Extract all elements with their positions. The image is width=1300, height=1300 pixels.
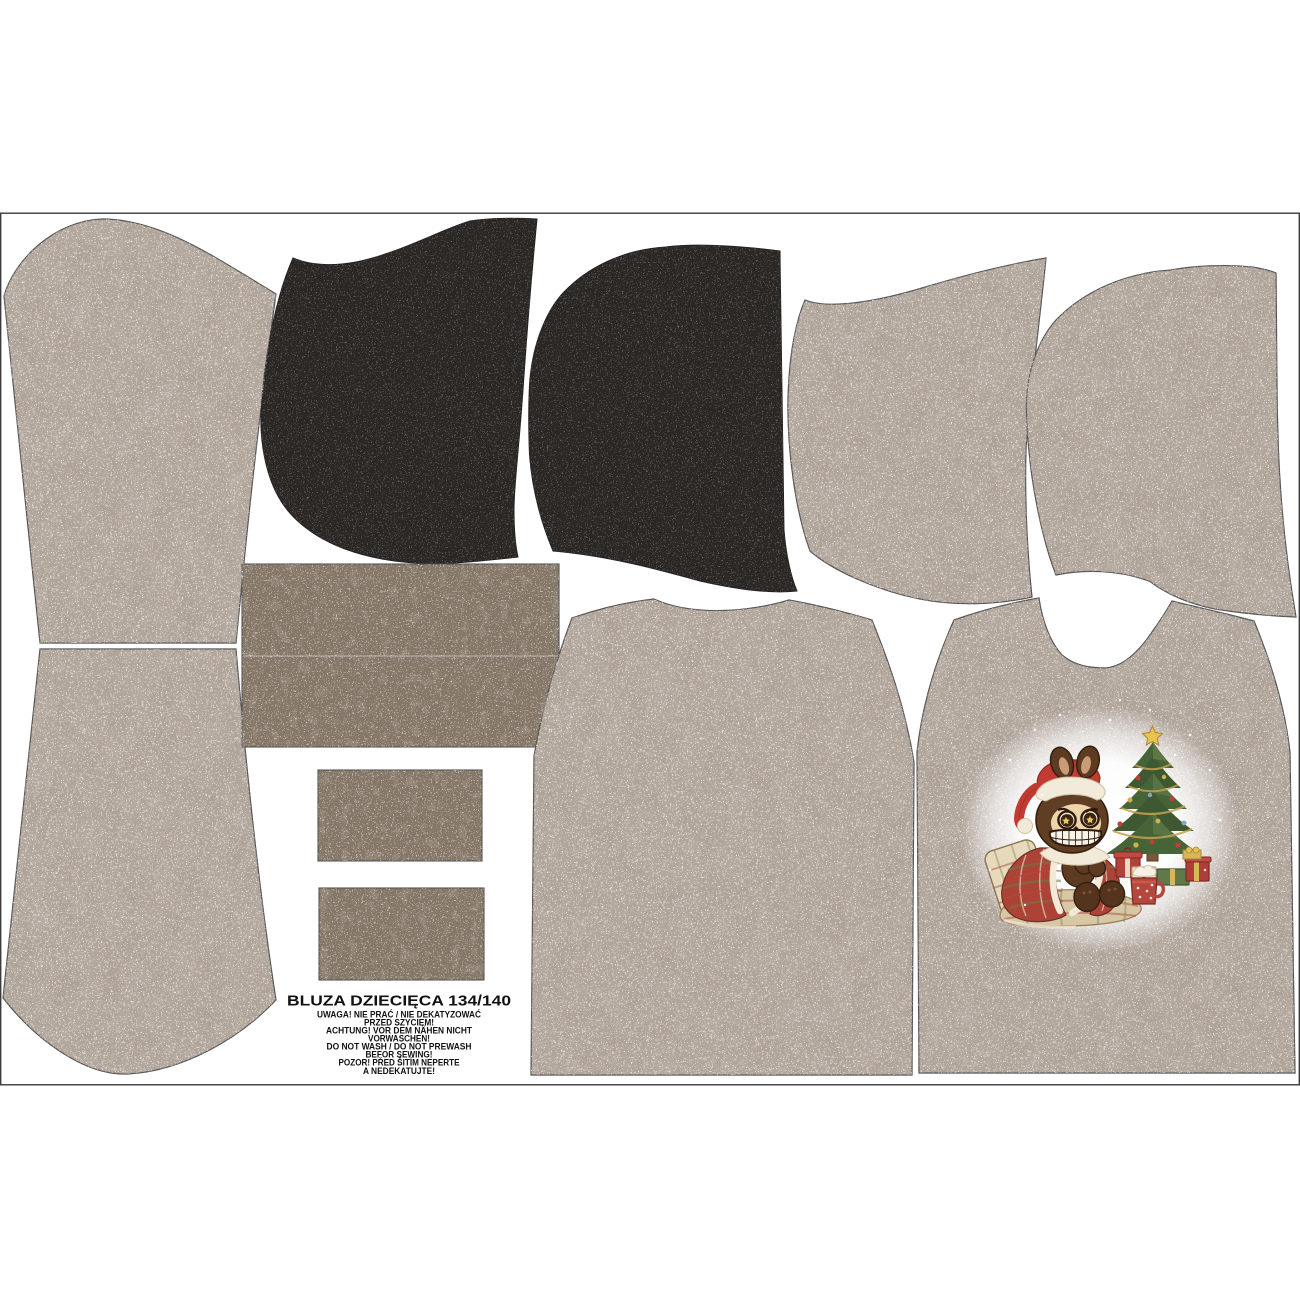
svg-text:A NEDEKATUJTE!: A NEDEKATUJTE! (363, 1066, 435, 1077)
svg-text:BLUZA DZIECIĘCA 134/140: BLUZA DZIECIĘCA 134/140 (287, 994, 511, 1010)
